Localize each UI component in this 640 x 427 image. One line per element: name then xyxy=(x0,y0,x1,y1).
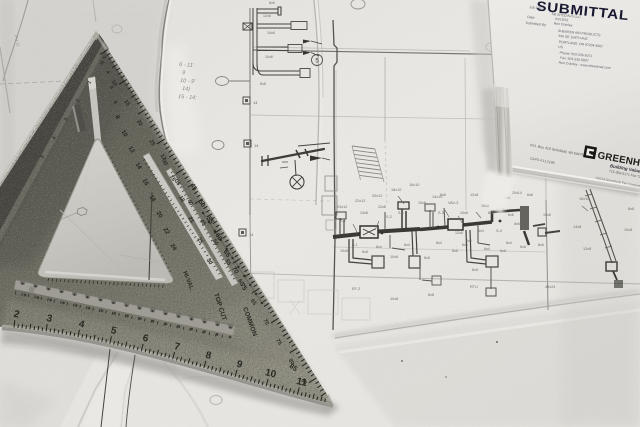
svg-text:10x8: 10x8 xyxy=(418,201,426,205)
svg-text:12x8: 12x8 xyxy=(470,193,478,197)
svg-text:14: 14 xyxy=(254,143,259,148)
svg-text:12x8: 12x8 xyxy=(455,231,463,235)
svg-text:22x12: 22x12 xyxy=(355,199,365,203)
svg-text:8x8: 8x8 xyxy=(428,293,434,297)
svg-text:6x6: 6x6 xyxy=(527,193,533,197)
svg-text:8x4: 8x4 xyxy=(436,241,442,245)
svg-text:S-4: S-4 xyxy=(496,229,502,233)
svg-text:8x6: 8x6 xyxy=(472,268,478,272)
svg-text:14: 14 xyxy=(253,100,258,105)
svg-text:S-1: S-1 xyxy=(340,219,346,223)
svg-text:10x8: 10x8 xyxy=(624,228,632,232)
svg-text:16x10: 16x10 xyxy=(409,183,419,187)
svg-text:8x4: 8x4 xyxy=(376,245,382,249)
svg-text:6x6: 6x6 xyxy=(520,245,526,249)
svg-text:S-3: S-3 xyxy=(438,211,444,215)
svg-text:10 - 9': 10 - 9' xyxy=(180,78,196,85)
svg-text:8x6: 8x6 xyxy=(514,222,520,226)
svg-text:48x24: 48x24 xyxy=(545,285,555,289)
svg-text:Date:: Date: xyxy=(527,15,536,20)
svg-text:10x8: 10x8 xyxy=(267,31,275,35)
svg-text:10x6: 10x6 xyxy=(390,255,398,259)
svg-text:6x6: 6x6 xyxy=(508,213,514,217)
svg-text:6x6: 6x6 xyxy=(500,249,506,253)
svg-text:10x8: 10x8 xyxy=(265,55,273,59)
svg-text:10x8: 10x8 xyxy=(543,213,551,217)
svg-text:14x8: 14x8 xyxy=(573,225,581,229)
svg-text:6x4: 6x4 xyxy=(404,243,410,247)
svg-text:6 - 11': 6 - 11' xyxy=(179,62,195,69)
svg-text:8x6: 8x6 xyxy=(628,207,634,211)
svg-text:8x6: 8x6 xyxy=(424,256,430,260)
svg-text:10x8: 10x8 xyxy=(390,297,398,301)
svg-text:EF-2: EF-2 xyxy=(352,287,360,291)
svg-text:S-2: S-2 xyxy=(386,215,392,219)
svg-text:6x4: 6x4 xyxy=(484,247,490,251)
svg-text:6x4: 6x4 xyxy=(462,243,468,247)
svg-text:B-1: B-1 xyxy=(352,243,358,247)
svg-text:RTU: RTU xyxy=(470,285,478,289)
svg-text:10x6: 10x6 xyxy=(460,211,468,215)
svg-text:16x10: 16x10 xyxy=(579,197,589,201)
svg-text:14x8: 14x8 xyxy=(360,211,368,215)
svg-text:8x8: 8x8 xyxy=(260,82,266,86)
svg-text:8x6: 8x6 xyxy=(538,243,544,247)
svg-text:20x12: 20x12 xyxy=(372,194,382,198)
svg-text:8x6: 8x6 xyxy=(269,1,275,5)
svg-text:10x6: 10x6 xyxy=(340,249,348,253)
svg-text:14x10: 14x10 xyxy=(432,195,442,199)
svg-text:9: 9 xyxy=(182,70,185,76)
svg-text:8x6: 8x6 xyxy=(362,250,368,254)
svg-text:14): 14) xyxy=(182,86,191,93)
svg-text:8x6: 8x6 xyxy=(466,239,472,243)
svg-text:8x6: 8x6 xyxy=(488,211,494,215)
svg-text:20x14: 20x14 xyxy=(512,191,522,195)
svg-text:6x4: 6x4 xyxy=(478,229,484,233)
svg-text:12x8: 12x8 xyxy=(263,14,271,18)
svg-text:12x8: 12x8 xyxy=(583,247,591,251)
svg-text:12x8: 12x8 xyxy=(378,205,386,209)
svg-text:S-6: S-6 xyxy=(398,211,404,215)
svg-text:18x10: 18x10 xyxy=(391,188,401,192)
svg-text:24x12: 24x12 xyxy=(337,205,347,209)
svg-text:8x6: 8x6 xyxy=(452,249,458,253)
svg-text:14: 14 xyxy=(249,232,254,237)
svg-text:6x4: 6x4 xyxy=(506,241,512,245)
svg-text:VAV-3: VAV-3 xyxy=(448,201,458,205)
